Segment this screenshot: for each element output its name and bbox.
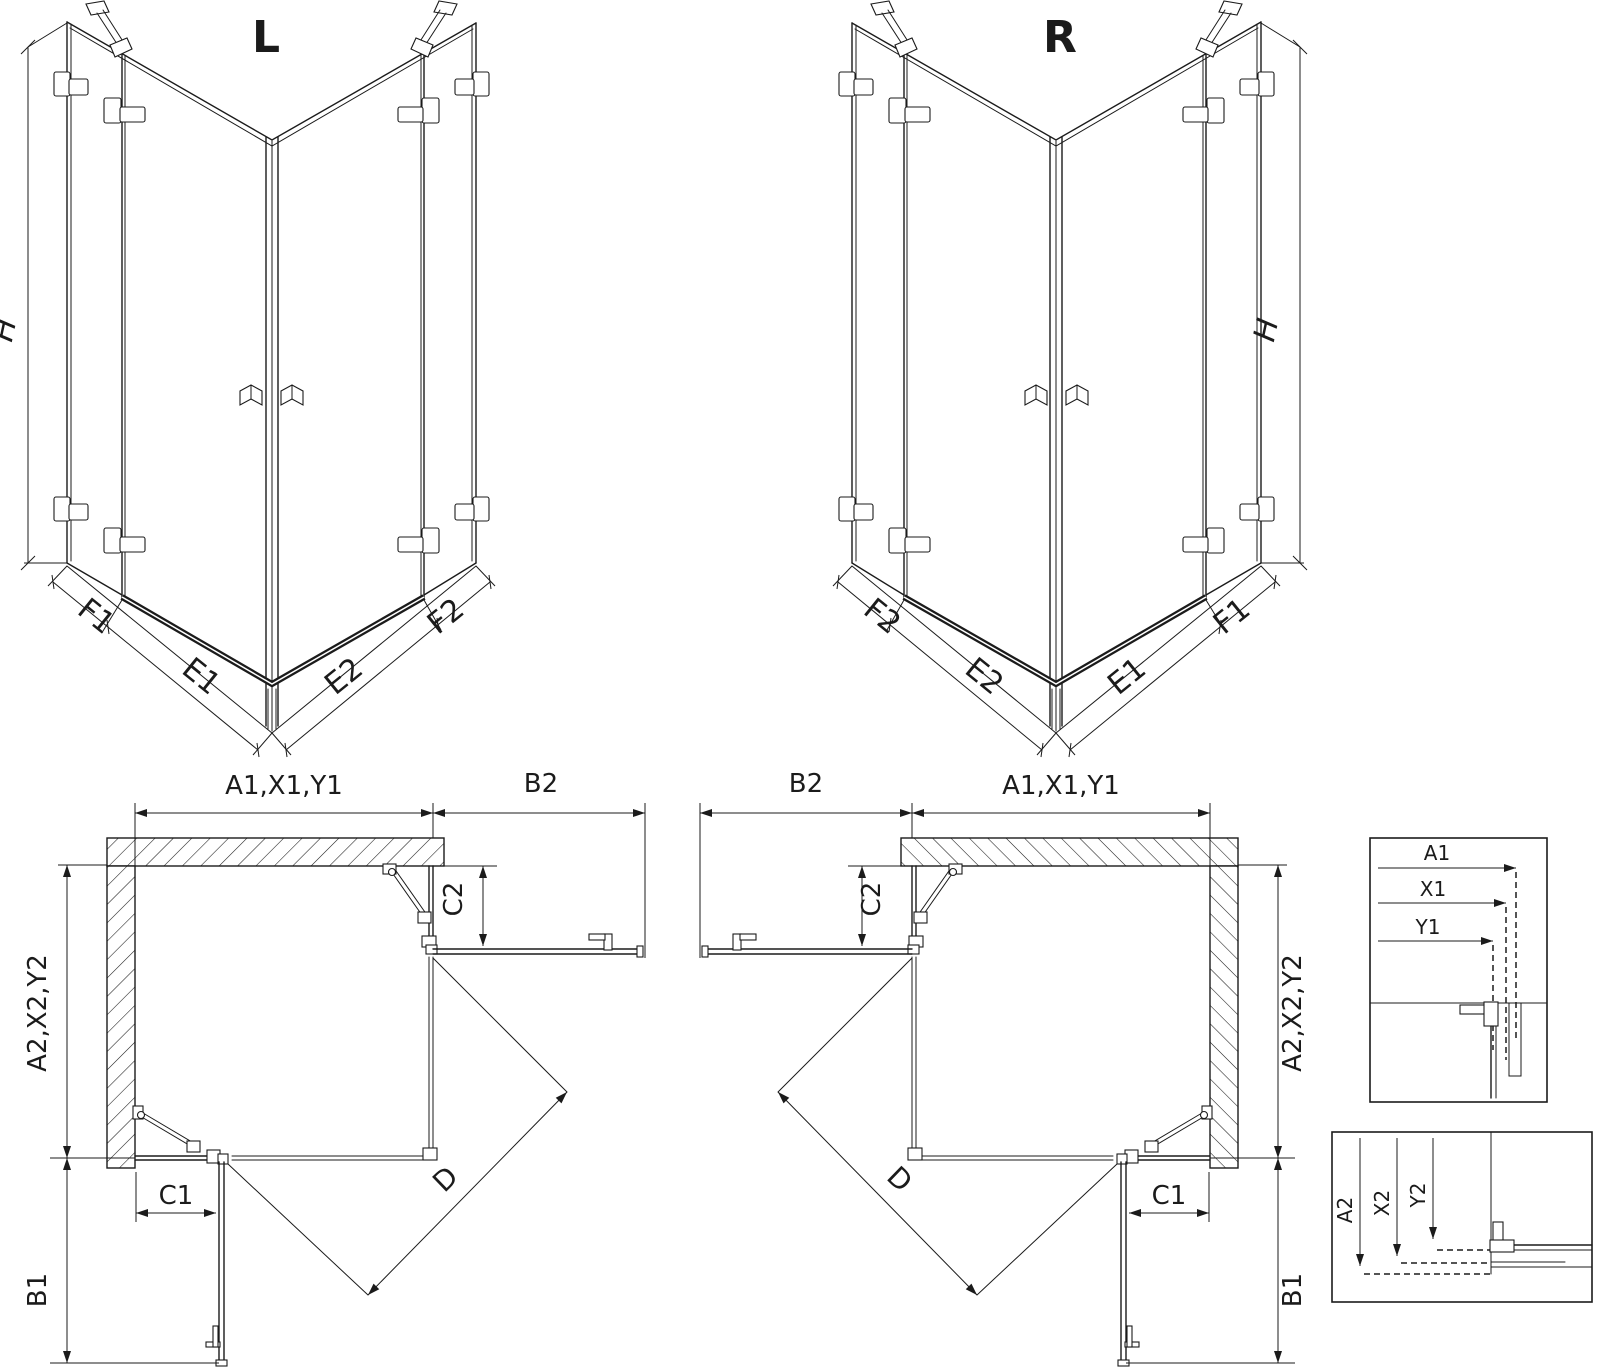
- iso-right-height-label: H: [1247, 315, 1286, 344]
- plan-right-width-label: A1,X1,Y1: [1002, 771, 1120, 801]
- plan-view-right: A1,X1,Y1 B2 A2,X2,Y2 B1 C2 C1 D: [700, 769, 1308, 1366]
- plan-right-c2-label: C2: [857, 882, 887, 917]
- detail-depth-x2-label: X2: [1370, 1190, 1394, 1216]
- iso-right-f1-label: F1: [1207, 592, 1257, 642]
- iso-right-e1-label: E1: [1101, 651, 1153, 702]
- plan-right-d-label: D: [880, 1160, 918, 1199]
- detail-width-x1-label: X1: [1420, 877, 1446, 901]
- shower-enclosure-drawing: L H F1 E1 E2 F2 R H F2 E2 E1 F1 A1,X1,Y1…: [0, 0, 1600, 1371]
- plan-left-d-label: D: [426, 1160, 464, 1199]
- iso-view-right: R H F2 E2 E1 F1: [833, 1, 1307, 757]
- detail-box-width: A1 X1 Y1: [1370, 838, 1547, 1102]
- iso-right-title: R: [1043, 12, 1077, 63]
- iso-left-f2-label: F2: [421, 592, 471, 642]
- plan-left-depth-label: A2,X2,Y2: [23, 954, 53, 1072]
- iso-left-f1-label: F1: [71, 592, 121, 642]
- plan-left-c1-label: C1: [159, 1181, 194, 1211]
- profile-section-depth: [1490, 1132, 1592, 1274]
- iso-left-height-label: H: [0, 315, 24, 344]
- iso-left-e1-label: E1: [175, 651, 227, 702]
- iso-view-left: L H F1 E1 E2 F2: [0, 1, 495, 757]
- plan-left-b2-label: B2: [524, 769, 558, 799]
- detail-box-depth: A2 X2 Y2: [1332, 1132, 1592, 1302]
- plan-view-left: A1,X1,Y1 B2 A2,X2,Y2 B1 C2 C1 D: [23, 769, 645, 1366]
- technical-drawing-page: L H F1 E1 E2 F2 R H F2 E2 E1 F1 A1,X1,Y1…: [0, 0, 1600, 1371]
- profile-section-width: [1370, 1002, 1547, 1098]
- plan-left-b1-label: B1: [23, 1273, 53, 1307]
- detail-depth-a2-label: A2: [1333, 1197, 1357, 1223]
- detail-width-a1-label: A1: [1424, 841, 1450, 865]
- plan-right-depth-label: A2,X2,Y2: [1278, 954, 1308, 1072]
- plan-left-c2-label: C2: [439, 882, 469, 917]
- plan-right-c1-label: C1: [1152, 1181, 1187, 1211]
- plan-right-b1-label: B1: [1278, 1273, 1308, 1307]
- plan-right-b2-label: B2: [789, 769, 823, 799]
- iso-right-f2-label: F2: [857, 592, 907, 642]
- detail-width-y1-label: Y1: [1415, 915, 1441, 939]
- iso-left-title: L: [252, 12, 280, 63]
- plan-left-width-label: A1,X1,Y1: [225, 771, 343, 801]
- detail-depth-y2-label: Y2: [1406, 1183, 1430, 1209]
